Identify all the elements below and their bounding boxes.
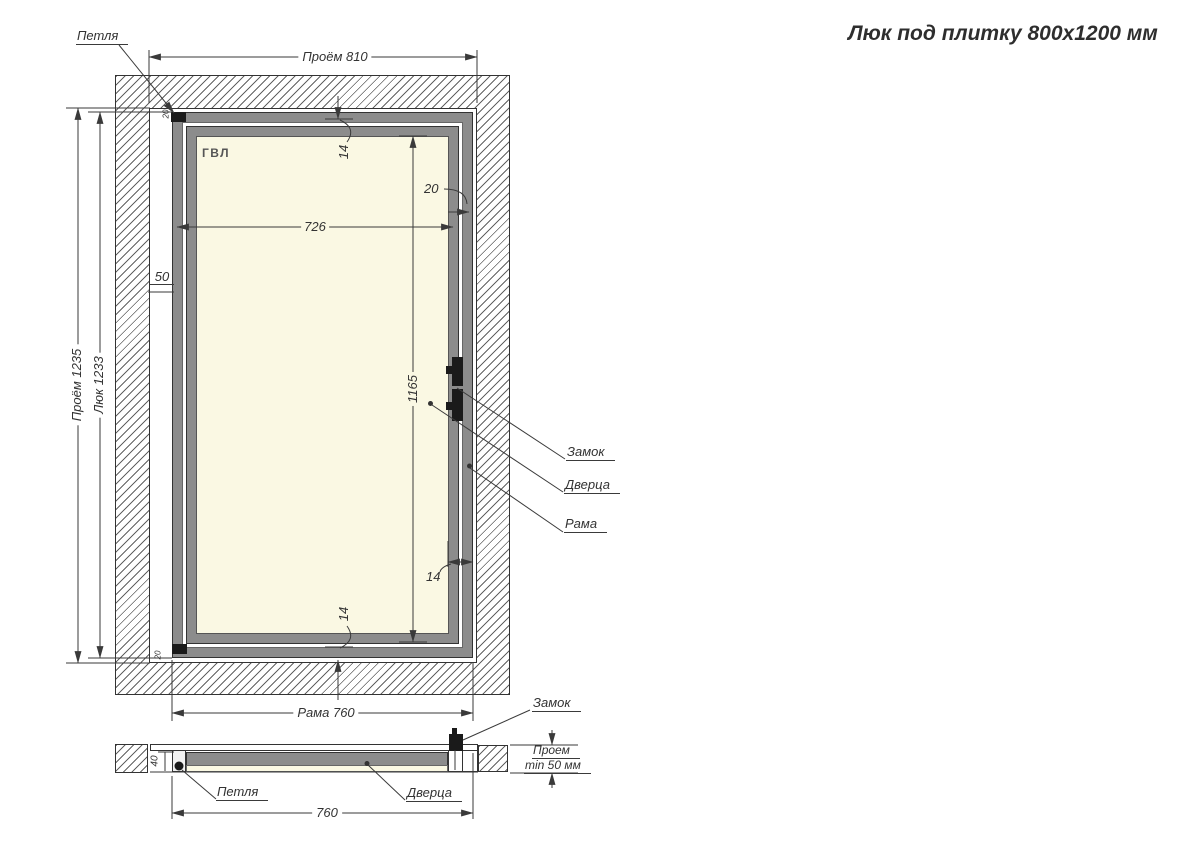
section-opening-depth-line2: min 50 мм [524,759,591,774]
door-label: Дверца [564,478,620,494]
section-dim-depth: 40 [150,755,161,766]
section-wall-right [478,745,508,772]
dim-side-gap: 50 [150,270,174,285]
section-flange [150,744,478,751]
frame-label: Рама [564,517,607,533]
section-lock-tip [452,728,457,735]
dim-hinge-offset-bottom: 20 [155,651,164,660]
drawing-title: Люк под плитку 800х1200 мм [820,22,1186,46]
dim-lock-gap: 20 [424,182,438,196]
dim-opening-width: Проём 810 [298,50,371,64]
material-label: ГВЛ [202,146,230,160]
section-door-label: Дверца [406,786,462,802]
dim-door-height: 1165 [406,372,420,406]
section-frame-right [448,750,478,772]
section-lock-label: Замок [532,696,581,712]
drawing-canvas: Люк под плитку 800х1200 мм Петля Проём 8… [0,0,1200,847]
hinge-mark-bottom [172,644,187,654]
hinge-label: Петля [76,29,128,45]
section-opening-depth-line1: Проем [532,744,580,759]
section-wall-left [115,744,148,773]
lock-notch-lower [446,402,453,410]
lock-notch-upper [446,366,453,374]
section-dim-width: 760 [312,806,342,820]
dim-hinge-offset-top: 20 [163,110,172,119]
hinge-mark-top [171,112,186,122]
section-gvl-strip [186,765,448,772]
dim-frame-width: Рама 760 [293,706,358,720]
section-lock [449,734,463,751]
lock-bar [452,357,463,421]
dim-overlap-bottom: 14 [337,607,351,621]
dim-inner-width: 726 [301,220,329,234]
dim-overlap-right: 14 [426,570,440,584]
section-frame-right-divider [462,750,463,772]
dim-opening-height: Проём 1235 [70,345,84,426]
lock-bar-gap [452,386,463,389]
dim-overlap-top: 14 [337,145,351,159]
lock-label: Замок [566,445,615,461]
section-door-body [186,752,448,766]
dim-hatch-height: Люк 1233 [92,352,106,417]
section-hinge-label: Петля [216,785,268,801]
section-frame-left [172,750,186,772]
